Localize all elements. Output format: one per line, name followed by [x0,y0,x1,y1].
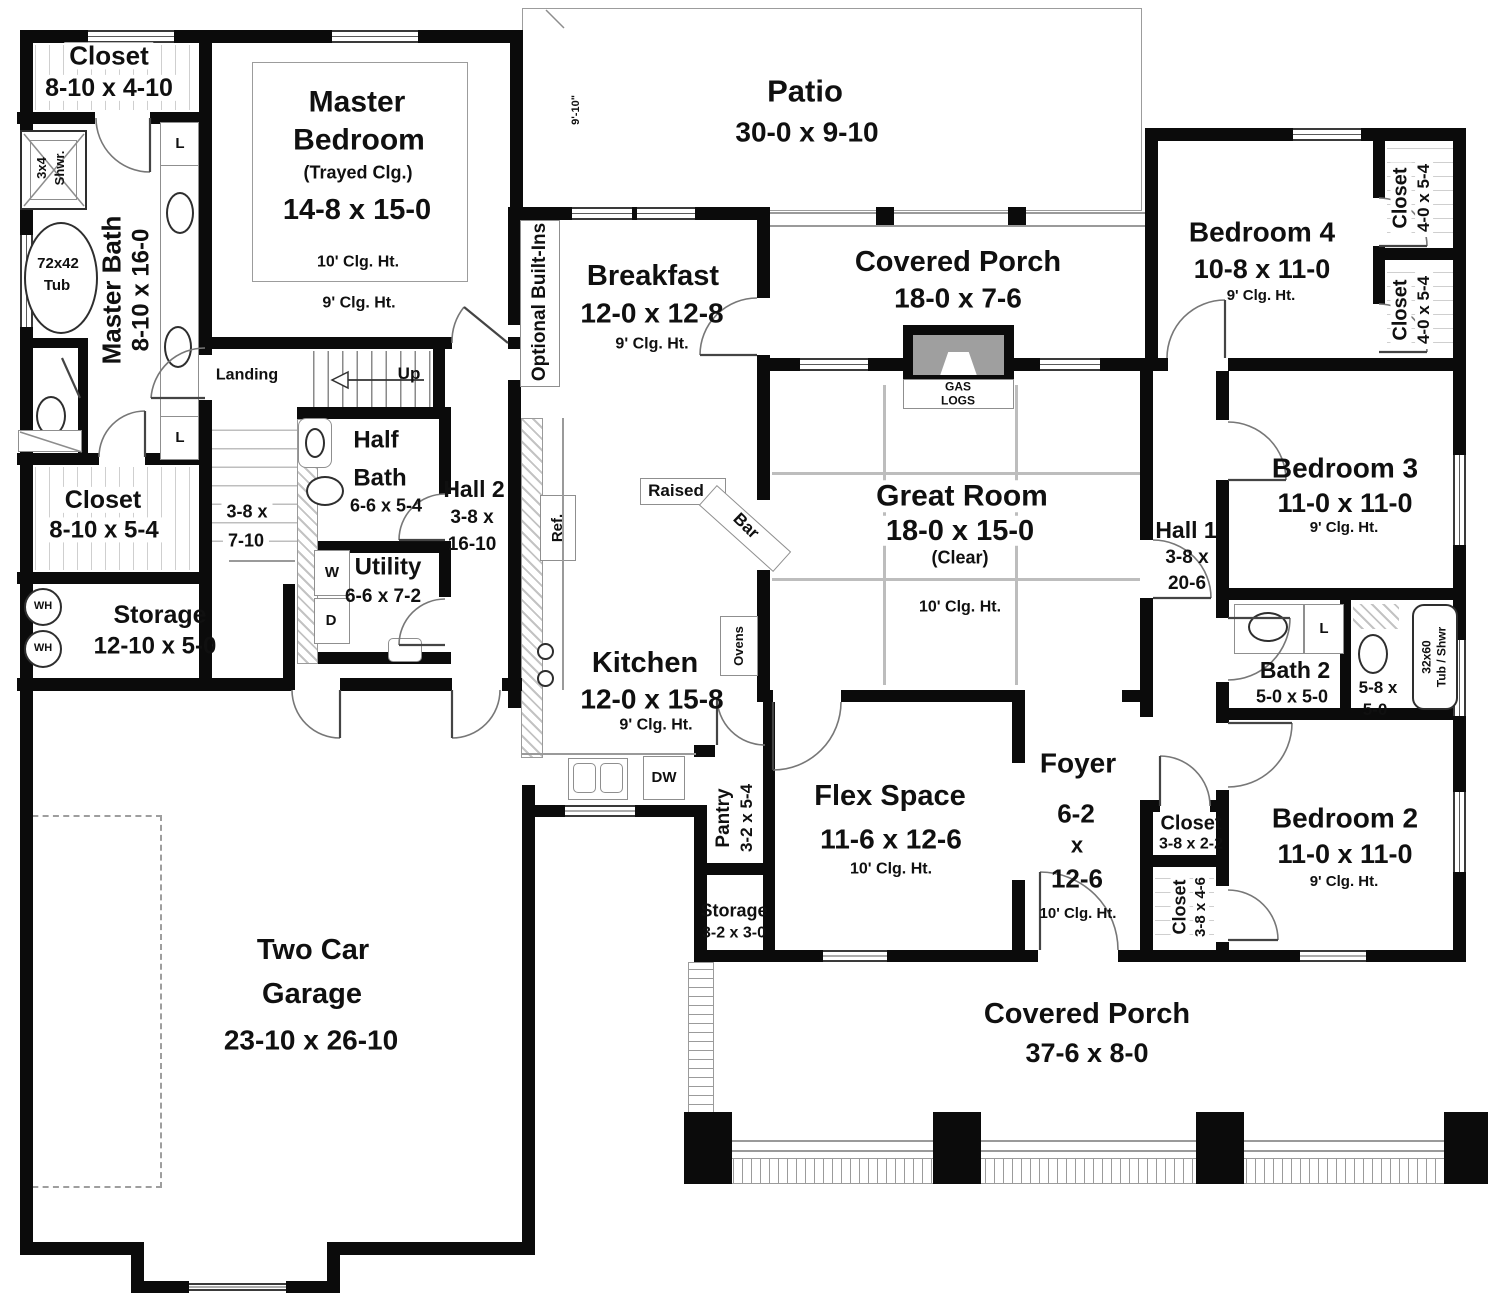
room-label-breakfast: Breakfast [587,261,719,291]
gas-logs-label: GAS [945,381,971,394]
room-dims-closet-b2: 3-8 x 4-6 [1193,872,1209,942]
room-label-porch-front: Covered Porch [984,999,1190,1029]
ceiling-foyer: 10' Clg. Ht. [1040,906,1117,922]
stairwell-dims: 3-8 x [221,503,272,522]
room-dims-master-bath: 8-10 x 16-0 [128,229,153,352]
room-label-pantry: Pantry [714,788,734,847]
room-dims-storage-rear: 12-10 x 5-0 [94,633,217,658]
room-dims-breakfast: 12-0 x 12-8 [580,298,723,327]
raised-bar-label: Raised [648,482,704,500]
linen-label: L [175,430,184,446]
room-dims-pantry: 3-2 x 5-4 [738,784,756,852]
room-dims-closet2: 8-10 x 5-4 [44,517,163,542]
room-label-great-room: Great Room [871,480,1053,512]
room-label-porch-rear: Covered Porch [855,247,1061,277]
room-dims-garage: 23-10 x 26-10 [224,1025,398,1054]
room-dims-closet-foyer: 3-8 x 2-2 [1159,837,1223,854]
linen-label: L [1319,621,1328,637]
room-label-half-bath2: Bath [353,465,406,490]
ceiling-master-bedroom: 10' Clg. Ht. [317,255,399,272]
dw-label: DW [652,770,677,786]
room-dims-porch-front: 37-6 x 8-0 [1025,1039,1148,1067]
ceiling-bedroom3: 9' Clg. Ht. [1310,520,1379,536]
room-label-closet-foyer: Closet [1160,814,1221,835]
landing-label: Landing [216,368,278,385]
room-dims-bath2: 5-0 x 5-0 [1256,688,1328,707]
room-dims-master-bedroom: 14-8 x 15-0 [283,195,431,225]
doors-overlay [0,0,1500,1304]
room-label-bath2: Bath 2 [1260,658,1330,682]
room-label-master-bath: Master Bath [98,216,125,365]
room-label-closet2: Closet [60,487,146,513]
room-dims-porch-rear: 18-0 x 7-6 [894,283,1022,312]
room-label-garage2: Garage [262,979,362,1009]
room-label-bedroom3: Bedroom 3 [1272,453,1418,482]
room-dims-foyer: 6-2 [1057,800,1095,827]
room-label-hall2: Hall 2 [443,477,504,501]
room-dims-storage-front: 3-2 x 3-0 [702,926,766,943]
room-label-hall1: Hall 1 [1155,518,1216,542]
dryer-label: D [326,613,337,629]
room-dims-great-room: 18-0 x 15-0 [881,516,1039,546]
ovens-label: Ovens [732,626,746,666]
floor-plan: Patio 30-0 x 9-10 9'-10" Closet 8-10 x 4… [0,0,1500,1304]
shower-label2: Shwr. [53,151,67,186]
room-label-storage-front: Storage [700,902,767,921]
room-dims-bedroom2: 11-0 x 11-0 [1277,840,1412,868]
room-dims-patio: 30-0 x 9-10 [735,117,878,146]
room-label-closet-b2: Closet [1171,874,1190,939]
wc-dims: 5-8 x [1359,679,1398,697]
room-label-half-bath: Half [353,427,398,452]
room-label-master-bedroom2: Bedroom [293,124,425,156]
room-label-master-closet: Closet [64,42,153,69]
gas-logs-label2: LOGS [941,395,975,408]
room-dims-bedroom4: 10-8 x 11-0 [1194,255,1331,283]
wh-label: WH [34,643,52,655]
room-label-master-bedroom: Master [309,86,406,118]
room-note-great-room: (Clear) [926,549,993,568]
room-dims-hall2b: 16-10 [448,535,497,555]
room-dims-kitchen: 12-0 x 15-8 [580,684,723,713]
ceiling-breakfast: 9' Clg. Ht. [615,337,688,354]
room-dims-half-bath: 6-6 x 5-4 [350,497,422,516]
ceiling-kitchen: 9' Clg. Ht. [619,718,692,735]
room-label-bedroom2: Bedroom 2 [1272,803,1418,832]
optional-builtins-label: Optional Built-Ins [530,223,550,381]
room-label-kitchen: Kitchen [592,648,698,678]
room-label-garage: Two Car [257,935,369,965]
fridge-label: Ref. [550,514,566,542]
shower-label: 3x4 [35,157,49,179]
tub2-label2: Tub / Shwr [1436,627,1449,687]
room-dims-flex: 11-6 x 12-6 [820,824,962,853]
room-dims-hall1b: 20-6 [1168,574,1206,594]
ceiling-flex: 10' Clg. Ht. [850,862,932,879]
ceiling2-master-bedroom: 9' Clg. Ht. [322,296,395,313]
room-dims-foyer-x: x [1071,833,1083,856]
tub-label: 72x42 [37,256,79,272]
room-label-closet-b4b: Closet [1391,274,1412,345]
room-dims-hall1: 3-8 x [1165,548,1208,568]
ceiling-bedroom4: 9' Clg. Ht. [1227,288,1296,304]
ceiling-great-room: 10' Clg. Ht. [914,600,1006,617]
room-dims-utility: 6-6 x 7-2 [345,587,421,607]
room-note-master-bedroom: (Trayed Clg.) [303,164,412,183]
tub2-label: 32x60 [1421,640,1434,673]
up-label: Up [398,365,421,383]
ceiling-bedroom2: 9' Clg. Ht. [1310,874,1379,890]
room-dims-foyer2: 12-6 [1051,865,1103,892]
room-label-foyer: Foyer [1040,748,1116,777]
wc-dims2: 5-0 [1363,701,1388,719]
room-label-closet-b4a: Closet [1391,162,1412,233]
linen-label: L [175,136,184,152]
wh-label: WH [34,601,52,613]
room-dims-bedroom3: 11-0 x 11-0 [1277,489,1412,517]
room-dims-closet-b4b: 4-0 x 5-4 [1415,271,1433,349]
room-label-utility: Utility [355,554,422,579]
room-dims-hall2: 3-8 x [450,508,493,528]
room-dims-closet-b4a: 4-0 x 5-4 [1415,159,1433,237]
room-dims-master-closet: 8-10 x 4-10 [40,75,178,101]
washer-label: W [325,565,339,581]
stairwell-dims2: 7-10 [223,532,269,551]
room-label-storage-rear: Storage [113,602,206,628]
tub-label2: Tub [44,278,70,294]
room-label-patio: Patio [767,76,843,109]
patio-depth-label: 9'-10" [571,95,583,125]
room-label-flex: Flex Space [814,781,966,811]
room-label-bedroom4: Bedroom 4 [1189,217,1335,246]
